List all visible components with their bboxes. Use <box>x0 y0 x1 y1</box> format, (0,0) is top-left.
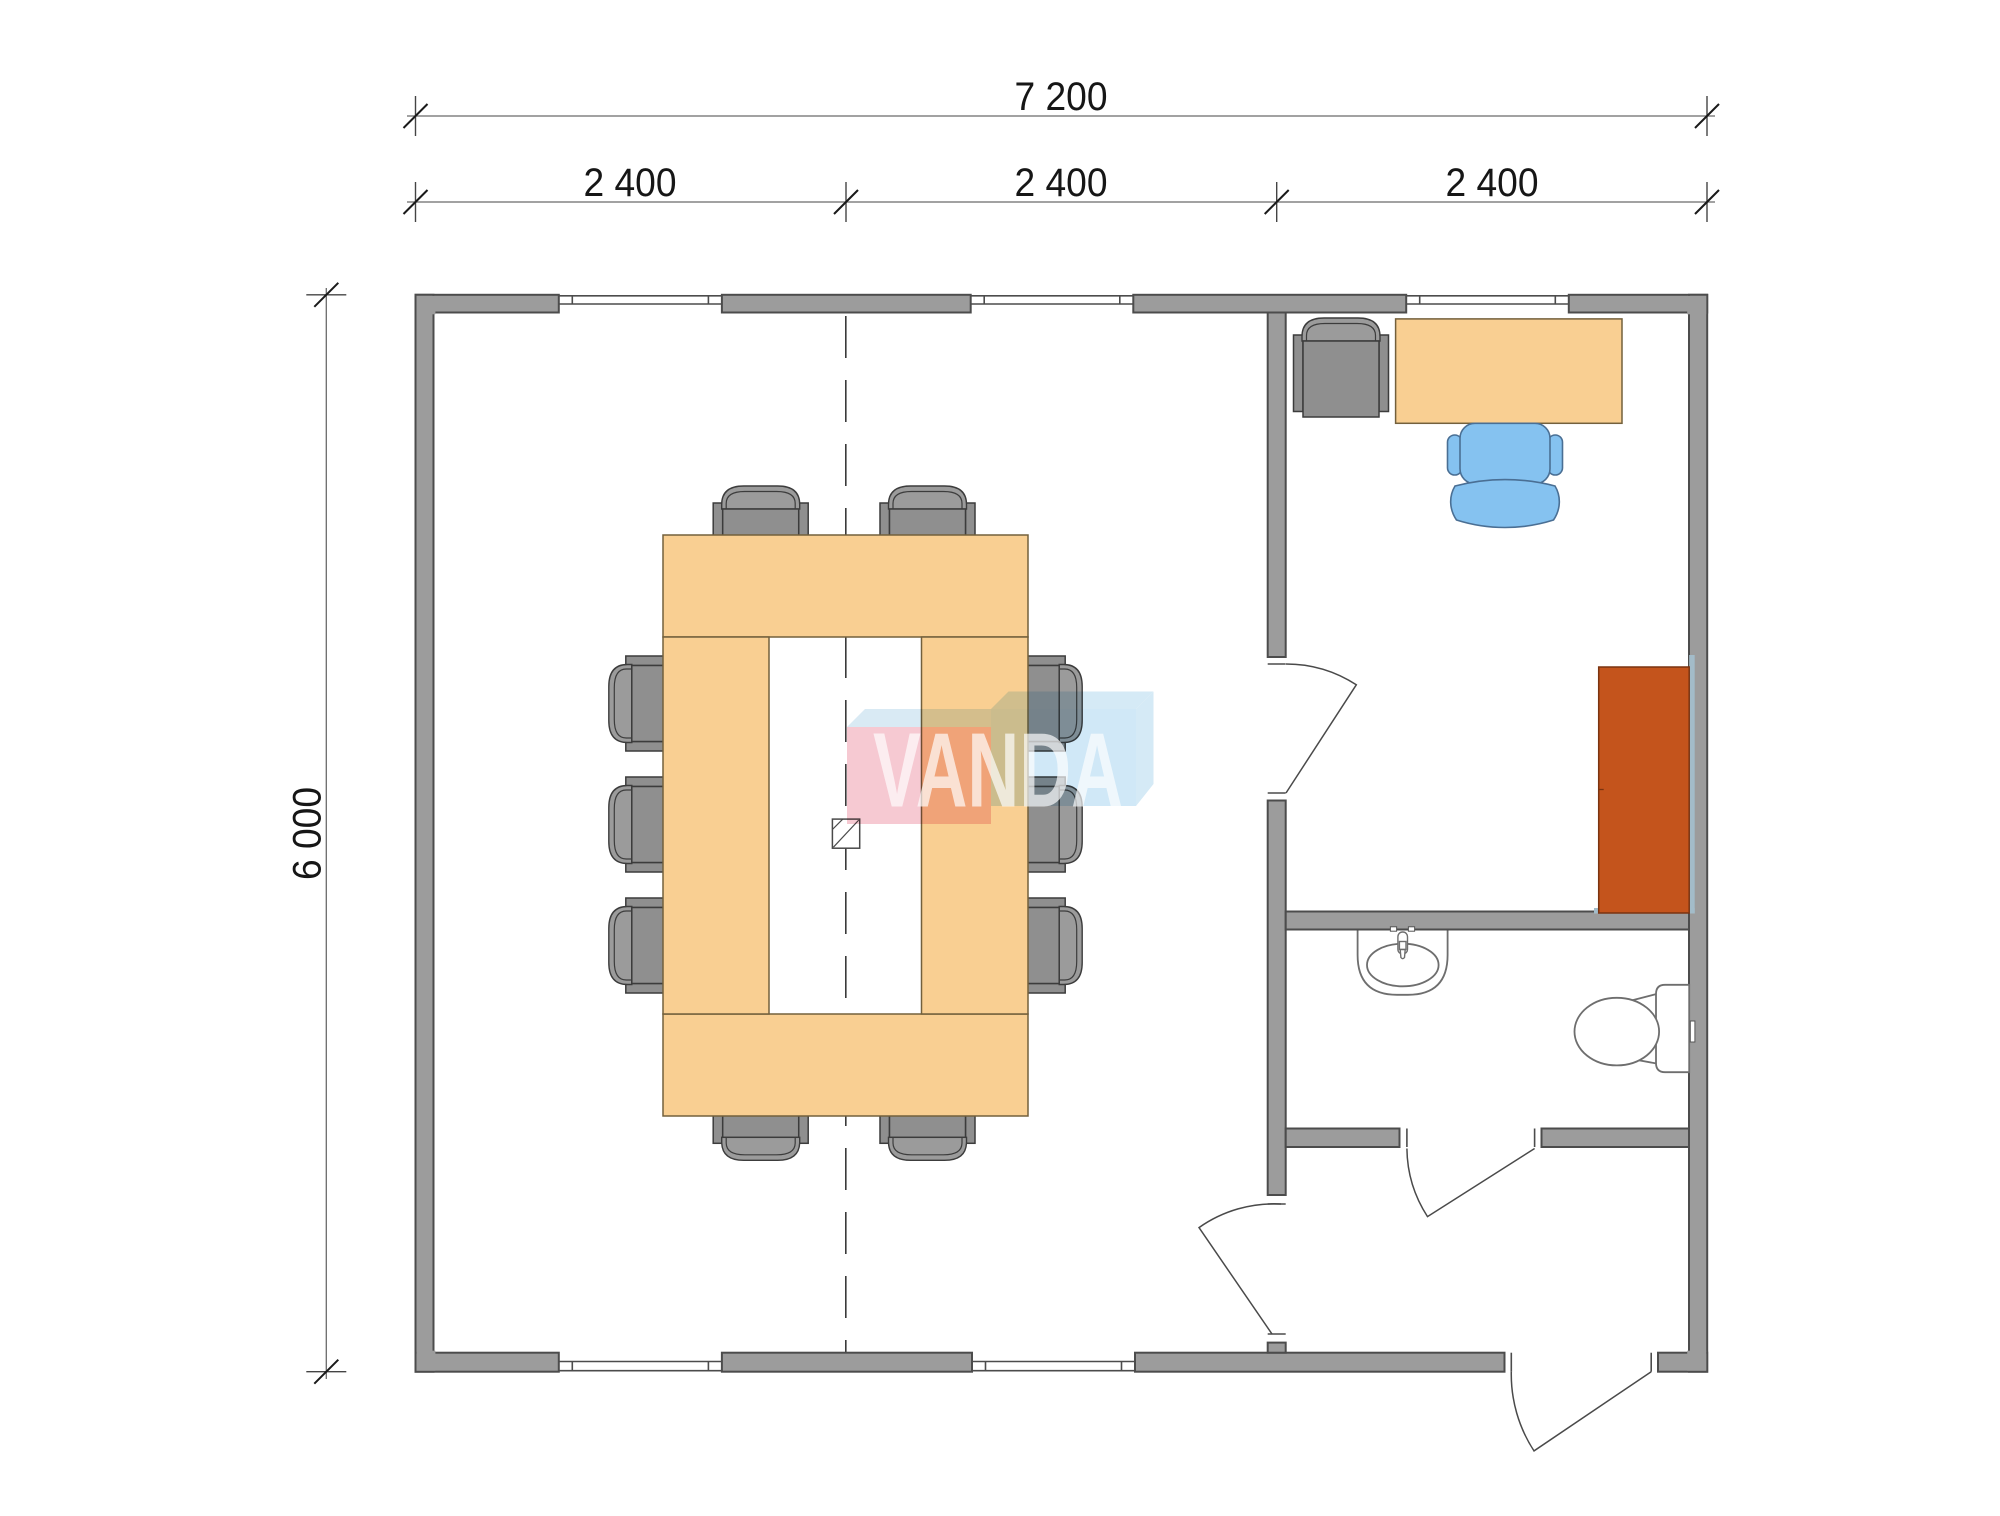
svg-text:VANDA: VANDA <box>873 712 1123 830</box>
svg-text:6 000: 6 000 <box>286 787 330 880</box>
svg-text:7 200: 7 200 <box>1015 75 1108 119</box>
svg-text:2 400: 2 400 <box>1446 161 1539 205</box>
svg-text:2 400: 2 400 <box>1015 161 1108 205</box>
svg-text:2 400: 2 400 <box>584 161 677 205</box>
